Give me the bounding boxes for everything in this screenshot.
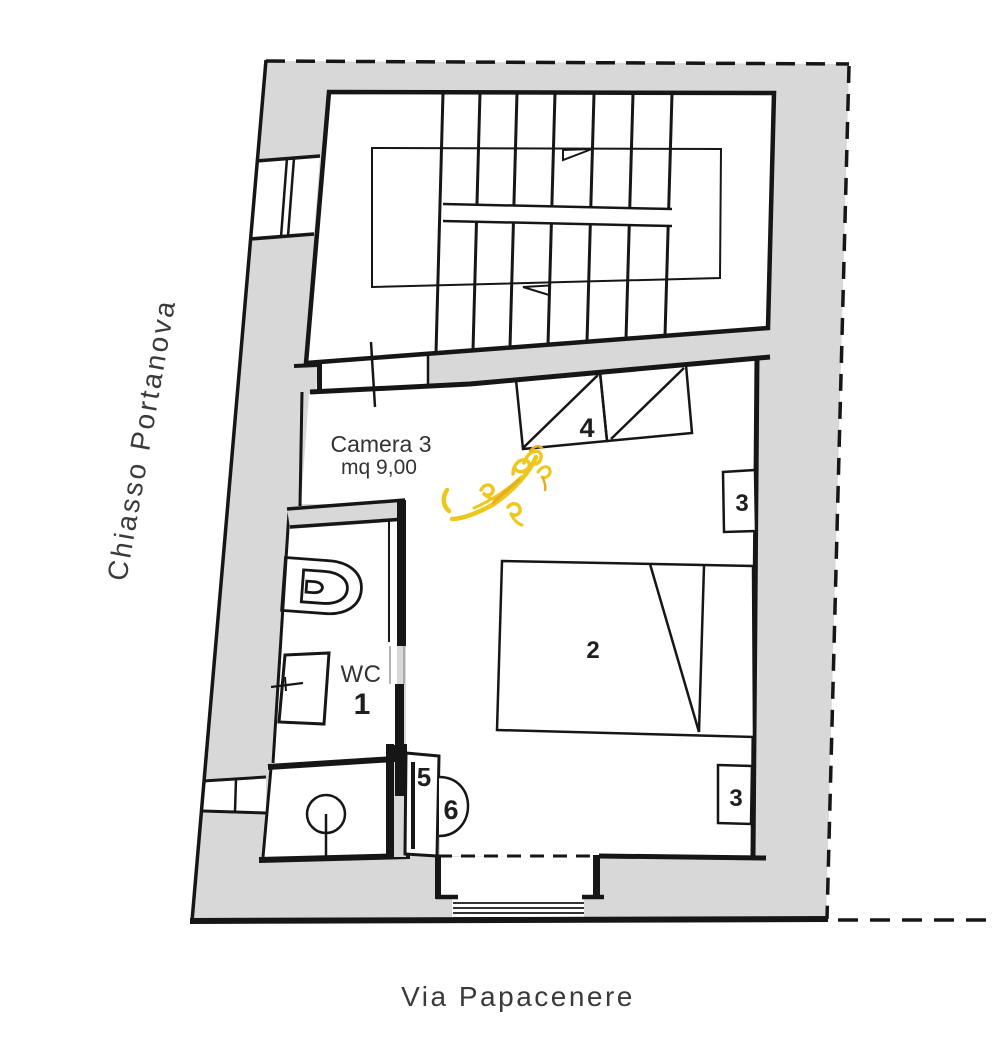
svg-text:3: 3 <box>735 490 748 517</box>
svg-text:mq 9,00: mq 9,00 <box>341 456 417 479</box>
svg-text:Camera 3: Camera 3 <box>331 431 432 457</box>
svg-text:4: 4 <box>579 413 594 443</box>
svg-text:1: 1 <box>354 688 371 721</box>
svg-text:3: 3 <box>729 785 742 812</box>
svg-text:WC: WC <box>341 661 382 688</box>
svg-text:6: 6 <box>443 795 458 825</box>
svg-text:2: 2 <box>586 637 599 664</box>
svg-text:Via Papacenere: Via Papacenere <box>401 981 635 1012</box>
svg-text:5: 5 <box>417 762 431 792</box>
